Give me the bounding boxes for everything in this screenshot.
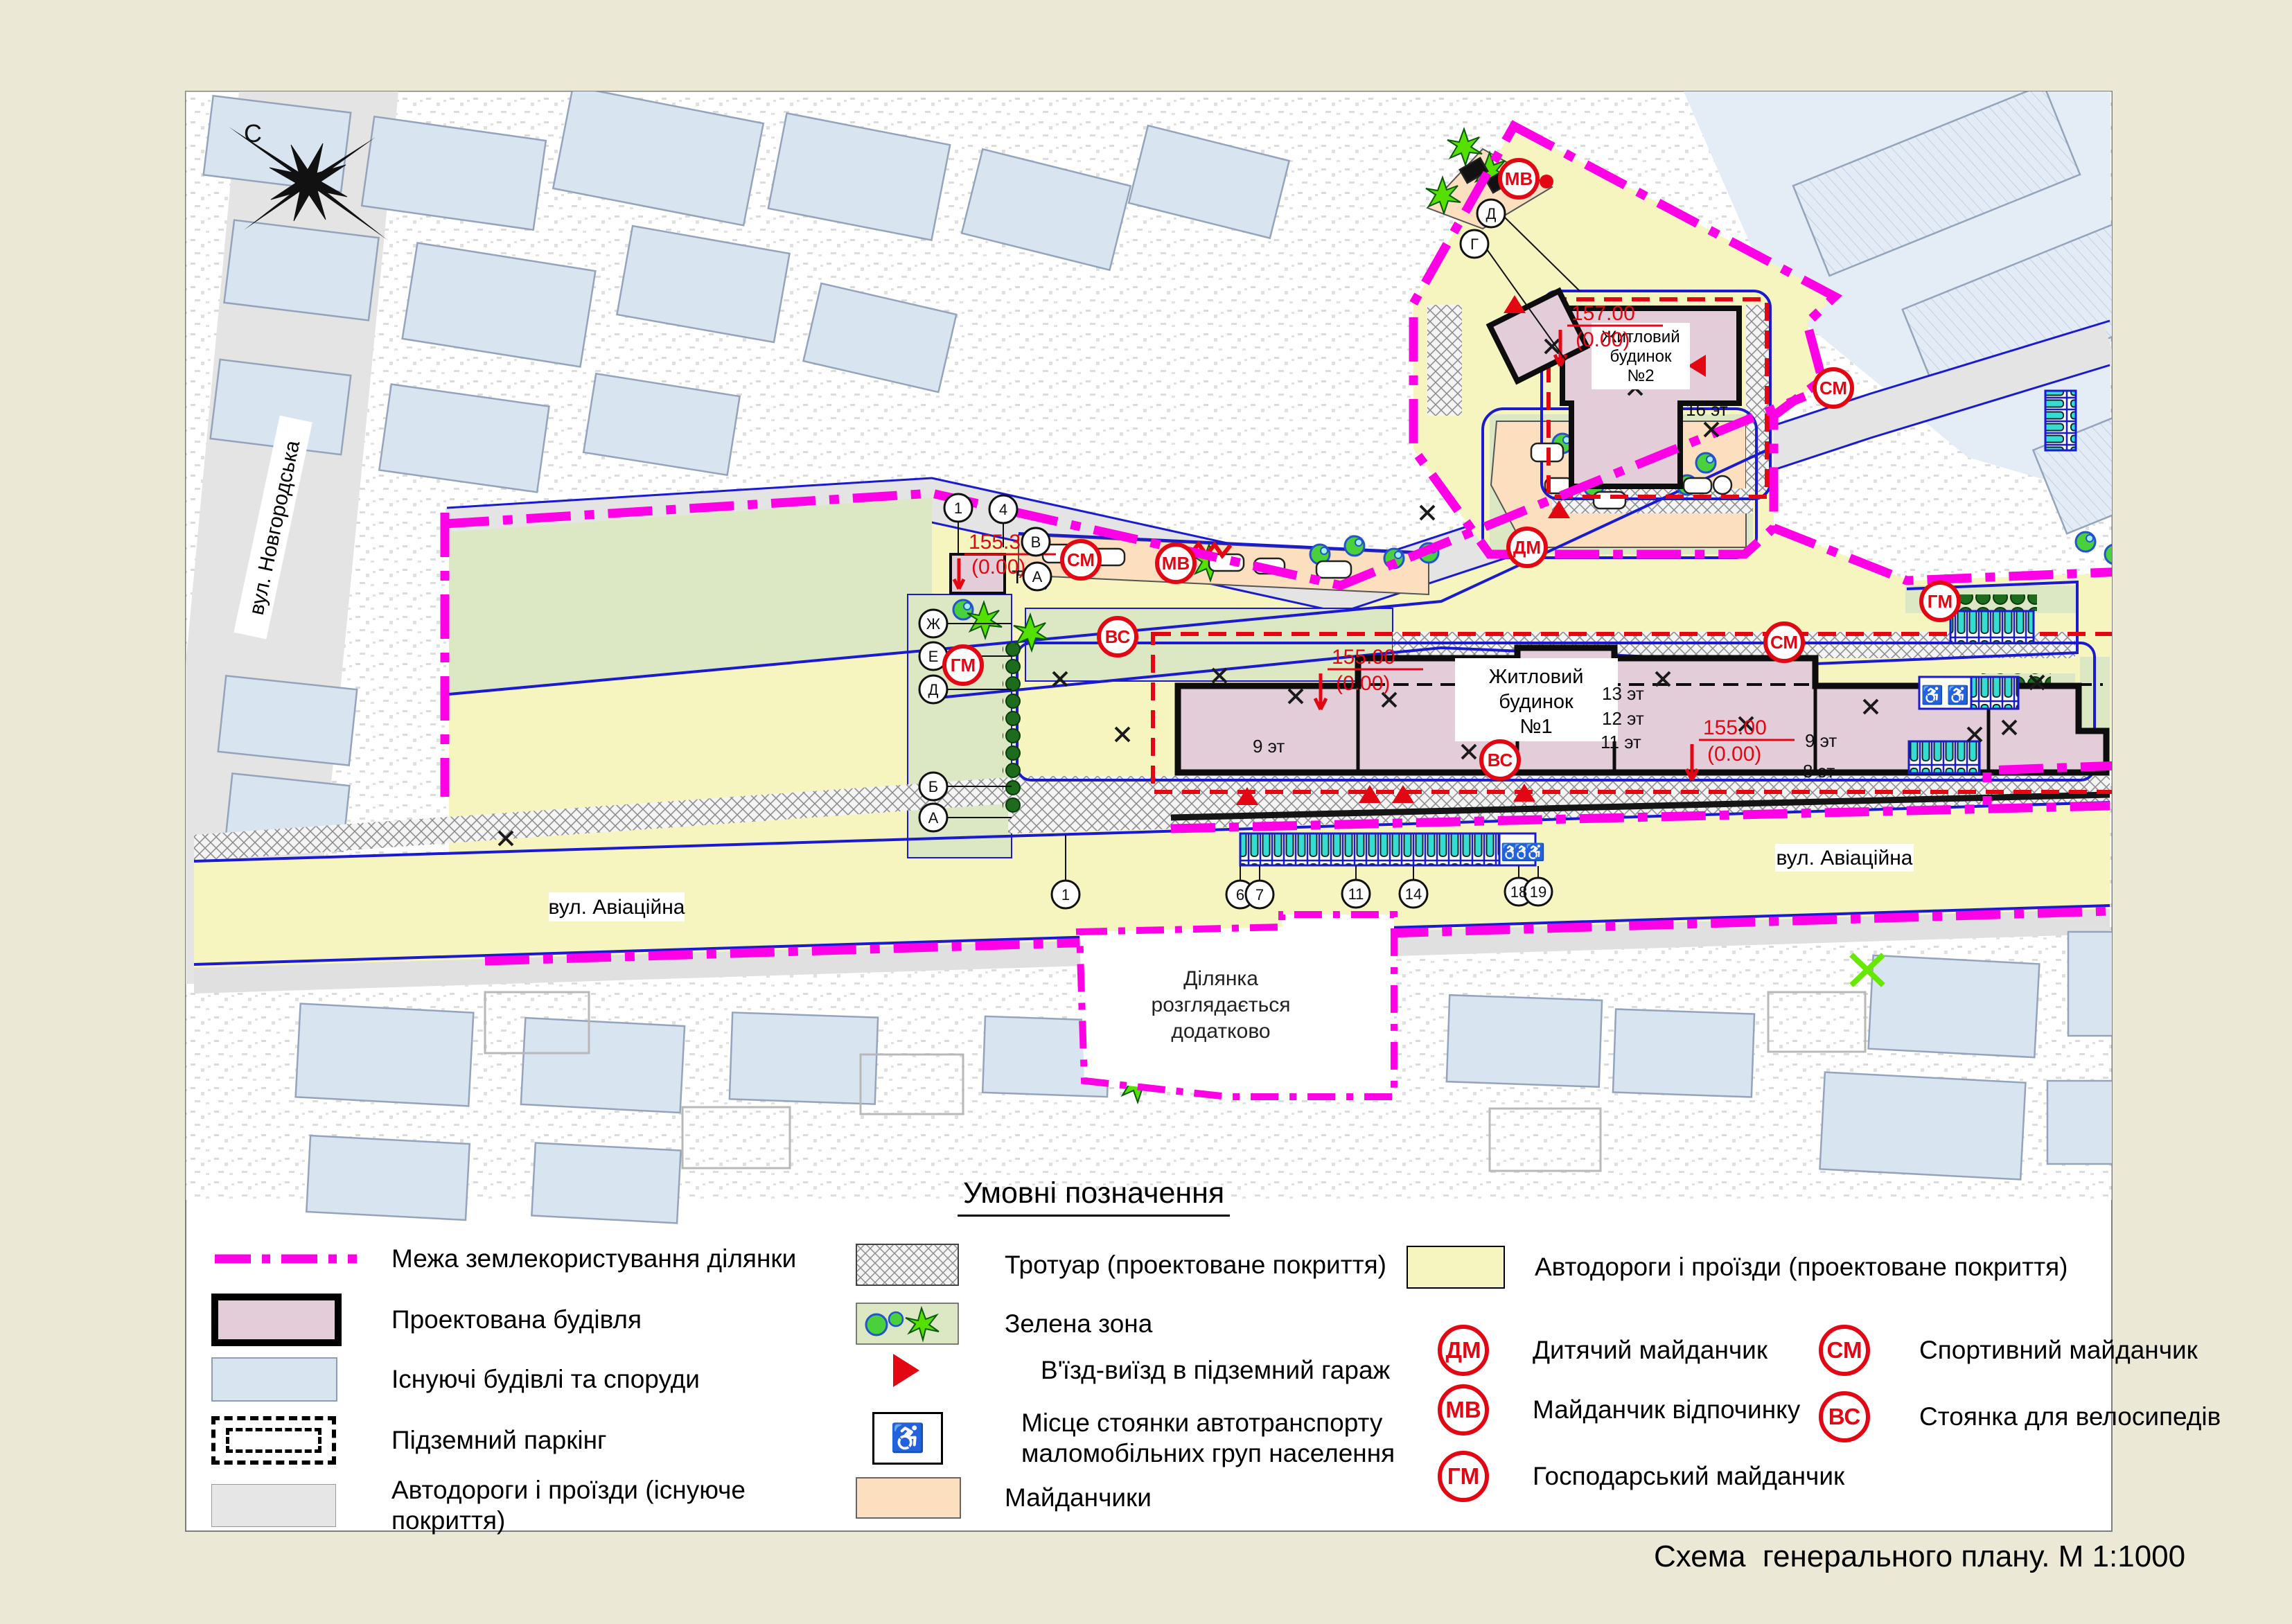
svg-text:9 эт: 9 эт <box>1253 736 1285 757</box>
svg-text:7: 7 <box>1255 886 1264 903</box>
legend-title: Умовні позначення <box>958 1176 1230 1217</box>
existing-building-icon <box>211 1357 391 1402</box>
proposed-building-icon <box>211 1294 391 1346</box>
legend-item-sm: СМ Спортивний майданчик <box>1819 1325 2198 1376</box>
disabled-parking-icon: ♿ <box>856 1412 1021 1465</box>
svg-text:СМ: СМ <box>1770 632 1798 653</box>
wheelchair-icon: ♿ <box>1947 685 1969 705</box>
legend-item-dm: ДМ Дитячий майданчик <box>1438 1325 1768 1376</box>
svg-text:8 эт: 8 эт <box>1803 761 1835 782</box>
svg-text:СМ: СМ <box>1067 549 1095 570</box>
legend-item-gm: ГМ Господарський майданчик <box>1438 1451 1844 1502</box>
svg-text:ГМ: ГМ <box>1928 591 1952 612</box>
svg-text:Житловий: Житловий <box>1489 666 1584 688</box>
svg-text:155.00: 155.00 <box>1703 716 1767 739</box>
svg-text:19: 19 <box>1530 883 1546 901</box>
svg-text:МВ: МВ <box>1505 168 1533 189</box>
sm-badge-icon: СМ <box>1819 1325 1870 1376</box>
mv-badge-icon: МВ <box>1438 1384 1489 1436</box>
boundary-line-icon <box>211 1250 391 1268</box>
legend-item-disabled-parking: ♿ Місце стоянки автотранспорту маломобіл… <box>856 1408 1409 1468</box>
svg-text:11: 11 <box>1348 885 1364 903</box>
svg-text:додатково: додатково <box>1171 1020 1270 1043</box>
svg-text:СМ: СМ <box>1819 378 1847 398</box>
wheelchair-icon: ♿ <box>1921 685 1943 705</box>
svg-text:Ділянка: Ділянка <box>1183 967 1258 990</box>
svg-text:Ж: Ж <box>926 615 941 633</box>
svg-text:№1: №1 <box>1519 716 1552 738</box>
svg-text:розглядається: розглядається <box>1152 994 1291 1016</box>
svg-text:9 эт: 9 эт <box>1805 730 1837 751</box>
svg-text:18: 18 <box>1510 883 1527 901</box>
svg-text:ВС: ВС <box>1488 750 1513 770</box>
garage-entrance-icon <box>856 1352 1041 1388</box>
svg-text:16 эт: 16 эт <box>1686 399 1728 420</box>
svg-text:14: 14 <box>1405 885 1422 903</box>
svg-text:(0.00): (0.00) <box>1707 743 1761 766</box>
tree-icon <box>2076 532 2095 551</box>
street-label-aviatsiina-west: вул. Авіаційна <box>549 896 685 919</box>
page: ♿ ♿ ♿ ♿ ♿ <box>0 0 2292 1621</box>
green-zone-icon <box>856 1303 1005 1345</box>
legend-item-existing-roads: Автодороги і проїзди (існуюче покриття) <box>211 1475 835 1535</box>
svg-text:А: А <box>1032 568 1043 585</box>
tree-icon <box>1696 453 1716 473</box>
svg-text:(0.00): (0.00) <box>1336 672 1390 695</box>
legend-item-proposed-building: Проектована будівля <box>211 1294 642 1346</box>
drawing-caption: Схема генерального плану. М 1:1000 <box>1654 1539 2185 1574</box>
proposed-road-icon <box>1407 1246 1535 1289</box>
legend-item-mv: МВ Майданчик відпочинку <box>1438 1384 1800 1436</box>
svg-text:ГМ: ГМ <box>951 655 976 676</box>
svg-text:МВ: МВ <box>1162 553 1190 574</box>
svg-text:Е: Е <box>928 648 939 665</box>
svg-text:№2: №2 <box>1627 367 1654 385</box>
legend-item-garage-entrance: В'їзд-виїзд в підземний гараж <box>856 1352 1390 1388</box>
svg-text:12 эт: 12 эт <box>1602 708 1644 729</box>
legend-item-sidewalk: Тротуар (проектоване покриття) <box>856 1244 1386 1287</box>
red-dot <box>1540 175 1553 188</box>
svg-text:ДМ: ДМ <box>1513 537 1541 558</box>
legend-item-existing-buildings: Існуючі будівлі та споруди <box>211 1357 700 1402</box>
svg-text:ВС: ВС <box>1105 626 1131 647</box>
svg-text:В: В <box>1031 533 1041 551</box>
svg-text:155.00: 155.00 <box>1332 646 1395 669</box>
svg-text:Д: Д <box>1486 205 1497 222</box>
svg-text:4: 4 <box>999 501 1007 518</box>
svg-text:11 эт: 11 эт <box>1601 732 1641 752</box>
dm-badge-icon: ДМ <box>1438 1325 1489 1376</box>
legend-item-boundary: Межа землекористування ділянки <box>211 1244 796 1274</box>
vs-badge-icon: ВС <box>1819 1391 1870 1442</box>
svg-text:Г: Г <box>1470 236 1479 253</box>
wheelchair-icon: ♿ <box>1524 842 1545 862</box>
street-label-aviatsiina-east: вул. Авіаційна <box>1777 847 1913 870</box>
legend-item-green-zone: Зелена зона <box>856 1303 1152 1345</box>
legend-item-underground-parking: Підземний паркінг <box>211 1416 607 1465</box>
svg-text:157.00: 157.00 <box>1571 302 1635 325</box>
svg-text:1: 1 <box>1061 886 1070 903</box>
legend-item-playgrounds: Майданчики <box>856 1477 1152 1519</box>
sidewalk-hatch-icon <box>856 1244 1005 1287</box>
tree-icon <box>953 600 973 619</box>
underground-parking-icon <box>211 1416 391 1465</box>
svg-text:будинок: будинок <box>1499 691 1573 713</box>
svg-text:13 эт: 13 эт <box>1602 683 1644 704</box>
svg-text:Б: Б <box>928 778 938 795</box>
legend-item-vs: ВС Стоянка для велосипедів <box>1819 1391 2221 1442</box>
svg-text:1: 1 <box>954 500 962 517</box>
north-label: С <box>244 119 262 148</box>
svg-text:(0.00): (0.00) <box>971 556 1025 579</box>
legend-item-proposed-roads: Автодороги і проїзди (проектоване покрит… <box>1407 1246 2068 1289</box>
existing-road-icon <box>211 1484 391 1527</box>
tree-icon <box>2105 545 2124 564</box>
svg-text:(0.00): (0.00) <box>1576 328 1630 351</box>
svg-text:Д: Д <box>928 681 939 698</box>
svg-text:А: А <box>928 809 939 827</box>
gm-badge-icon: ГМ <box>1438 1451 1489 1502</box>
svg-text:6: 6 <box>1236 886 1244 903</box>
playground-area-icon <box>856 1477 1005 1519</box>
tree-icon <box>1345 536 1364 556</box>
